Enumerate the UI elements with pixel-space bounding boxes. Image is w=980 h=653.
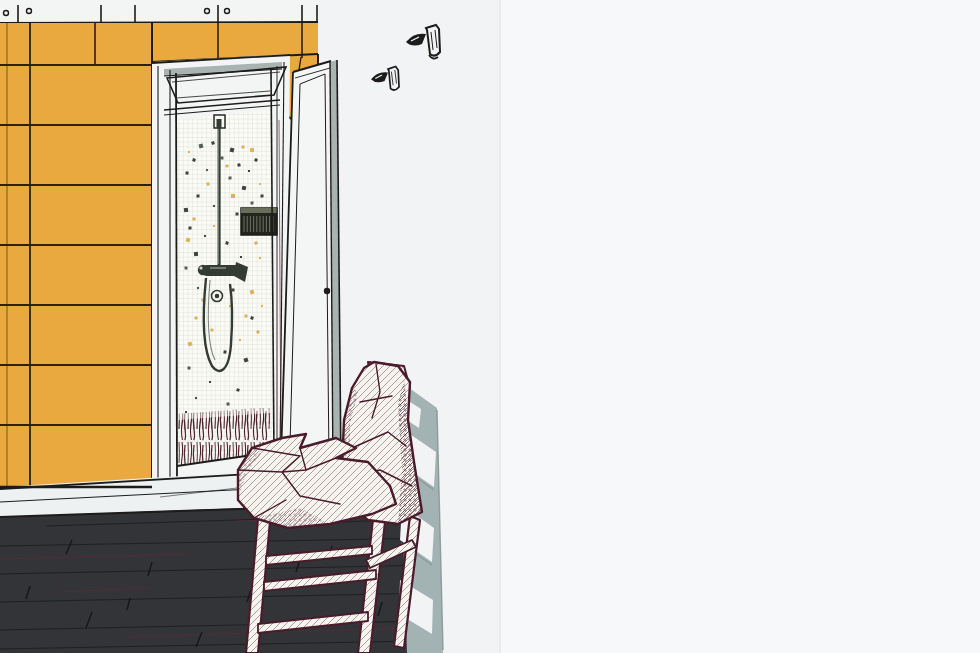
artwork-canvas — [0, 0, 980, 653]
shower-stall — [152, 54, 290, 490]
bathroom-illustration — [0, 0, 980, 653]
door-knob — [324, 288, 330, 294]
ceiling-trim-strip — [0, 0, 318, 23]
